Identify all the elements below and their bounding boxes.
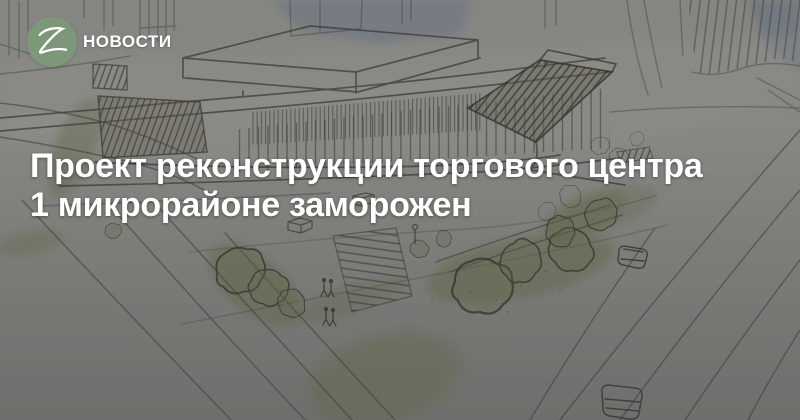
z-logo-icon [30,20,74,64]
site-section-label[interactable]: НОВОСТИ [83,32,172,52]
headline-line-2: 1 микрорайоне заморожен [30,186,471,224]
headline-line-1: Проект реконструкции торгового центра [30,147,702,185]
news-card[interactable]: НОВОСТИ Проект реконструкции торгового ц… [0,0,800,420]
article-headline[interactable]: Проект реконструкции торгового центра 1 … [30,147,780,225]
site-header: НОВОСТИ [27,17,172,67]
site-logo[interactable] [27,17,77,67]
